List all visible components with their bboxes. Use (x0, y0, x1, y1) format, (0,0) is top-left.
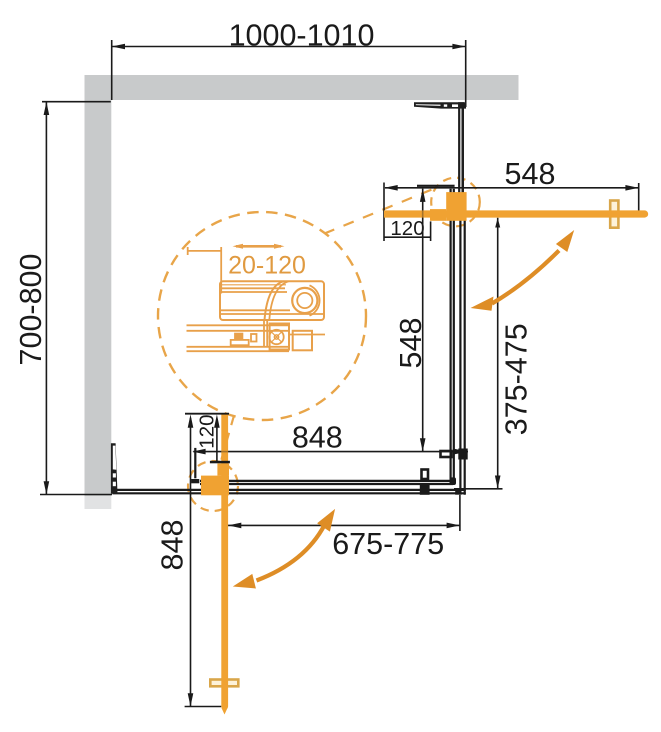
svg-text:700-800: 700-800 (14, 254, 48, 366)
svg-text:1000-1010: 1000-1010 (229, 18, 375, 52)
svg-text:548: 548 (505, 157, 556, 191)
svg-text:120: 120 (390, 217, 424, 240)
svg-text:375-475: 375-475 (499, 323, 533, 435)
svg-text:848: 848 (155, 520, 189, 571)
svg-text:675-775: 675-775 (332, 527, 444, 561)
svg-text:20-120: 20-120 (228, 252, 306, 280)
svg-text:120: 120 (196, 414, 219, 448)
svg-text:548: 548 (394, 318, 428, 369)
svg-text:848: 848 (292, 421, 343, 455)
